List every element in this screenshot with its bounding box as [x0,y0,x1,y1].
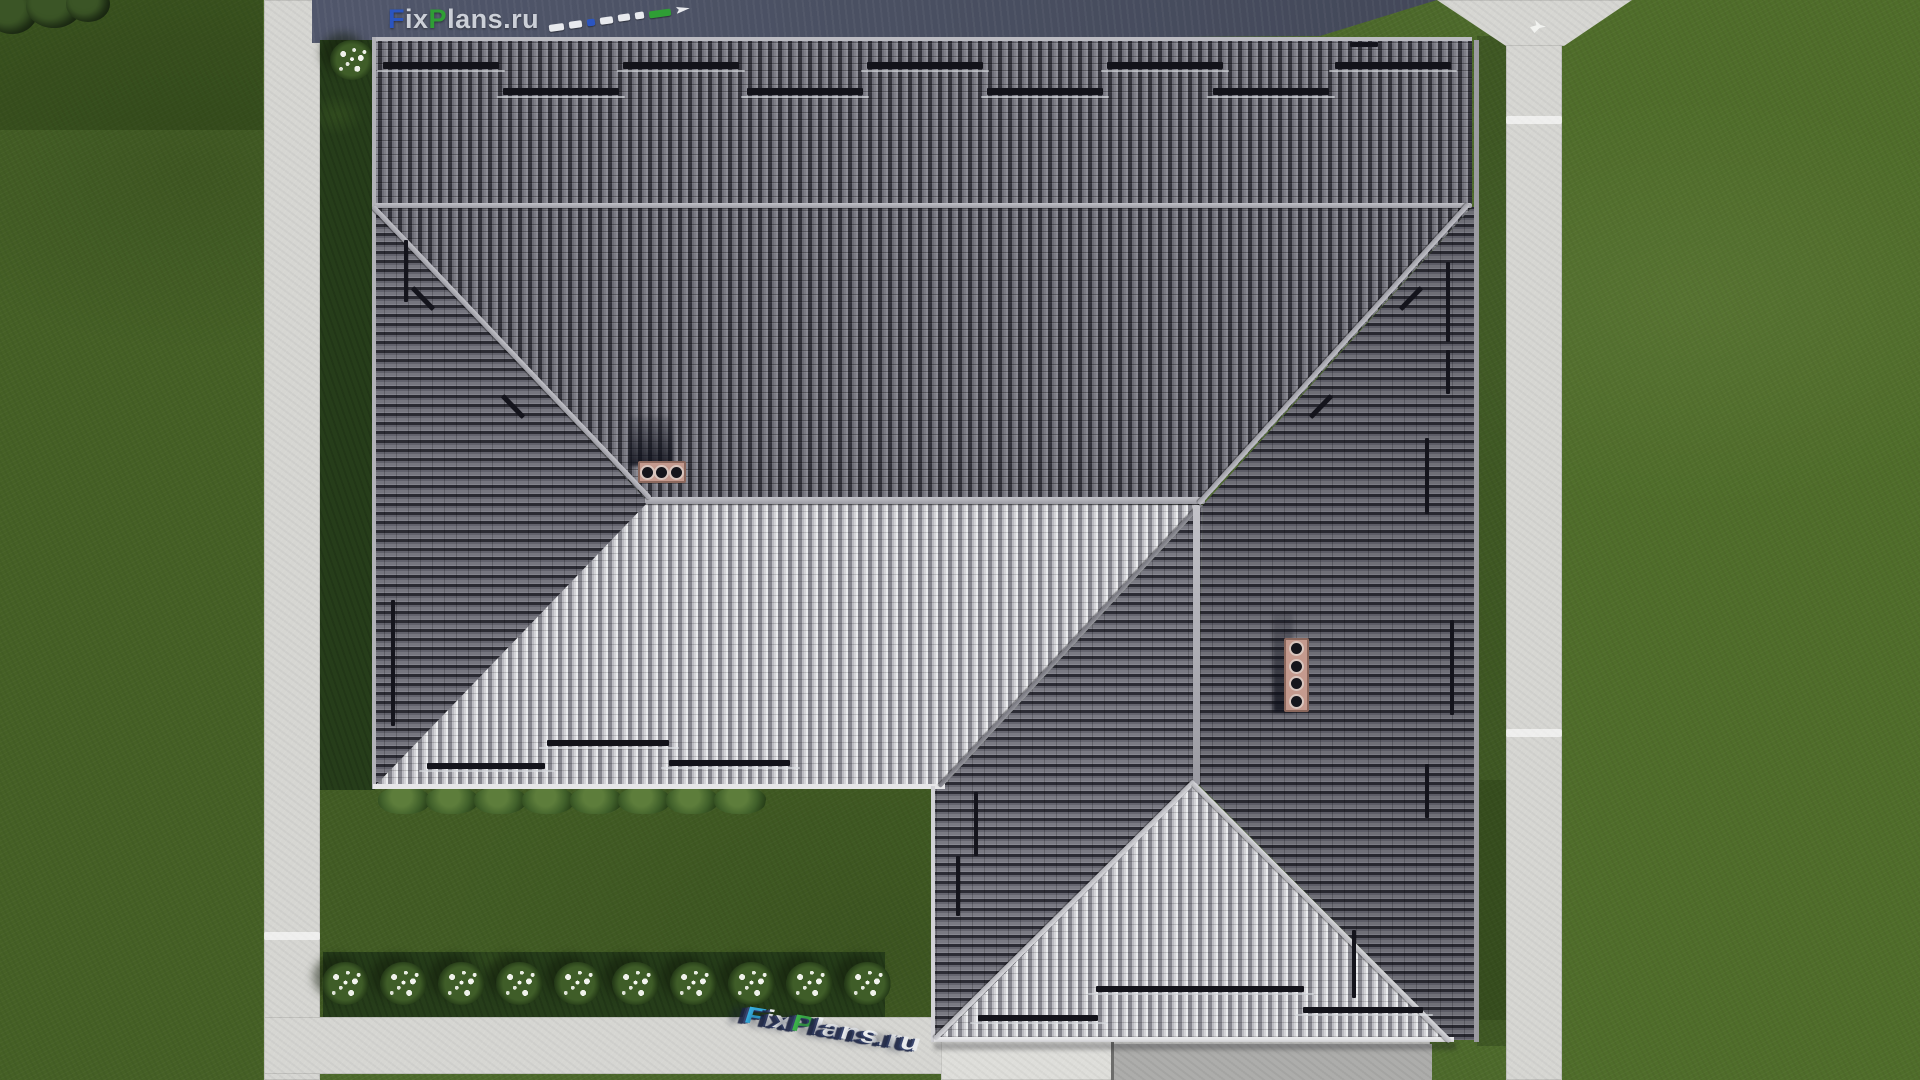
eave-north [375,37,1472,41]
snow-guard-batten [661,767,800,769]
roof-dash [1350,42,1378,47]
snow-guard [987,88,1103,95]
roof-dash [391,600,395,726]
snow-guard [1335,62,1451,69]
snow-guard-batten [861,70,989,72]
house-roof [0,0,1920,1080]
roof-dash [1352,930,1356,998]
roof-dash [1425,438,1429,514]
roof-dash [1446,350,1450,394]
flue [642,467,653,478]
snow-guard-batten [1207,96,1335,98]
roof-dash [974,792,978,856]
flue [1291,678,1302,689]
aerial-render-stage: FixPlans.ru [0,0,1920,1080]
snow-guard-batten [497,96,625,98]
snow-guard-batten [419,770,555,772]
snow-guard [503,88,619,95]
roof-dash [1450,620,1454,715]
eave-wing-west [931,786,935,1042]
eave-east [1474,40,1479,1042]
eave-west [372,37,376,789]
chimney-north [638,461,686,483]
snow-guard [1096,986,1304,992]
snow-guard [547,740,669,746]
snow-guard [747,88,863,95]
snow-guard-batten [617,70,745,72]
roof-dash [1425,764,1429,818]
snow-guard-batten [377,70,505,72]
eave-south-main [373,784,945,789]
snow-guard [867,62,983,69]
roof-dash [404,240,408,302]
roof-dash [956,856,960,916]
snow-guard [1107,62,1223,69]
flue [671,467,682,478]
flue [1291,696,1302,707]
snow-guard [669,760,790,766]
snow-guard [1303,1007,1423,1013]
roof-dash [1446,262,1450,342]
snow-guard-batten [1295,1014,1433,1016]
snow-guard-batten [1088,993,1314,995]
snow-guard [1213,88,1329,95]
ridge-wing [1193,505,1200,785]
ridge-main [645,497,1205,504]
snow-guard-batten [981,96,1109,98]
snow-guard [623,62,739,69]
flue [656,467,667,478]
snow-guard-batten [741,96,869,98]
snow-guard-batten [1101,70,1229,72]
chimney-east [1284,638,1309,712]
flue [1291,661,1302,672]
snow-guard-batten [1329,70,1457,72]
flue [1291,643,1302,654]
snow-guard [427,763,545,769]
snow-guard [383,62,499,69]
snow-guard-batten [539,747,679,749]
ridge-upper-break [375,203,1472,208]
chimney-shadow [629,416,673,466]
